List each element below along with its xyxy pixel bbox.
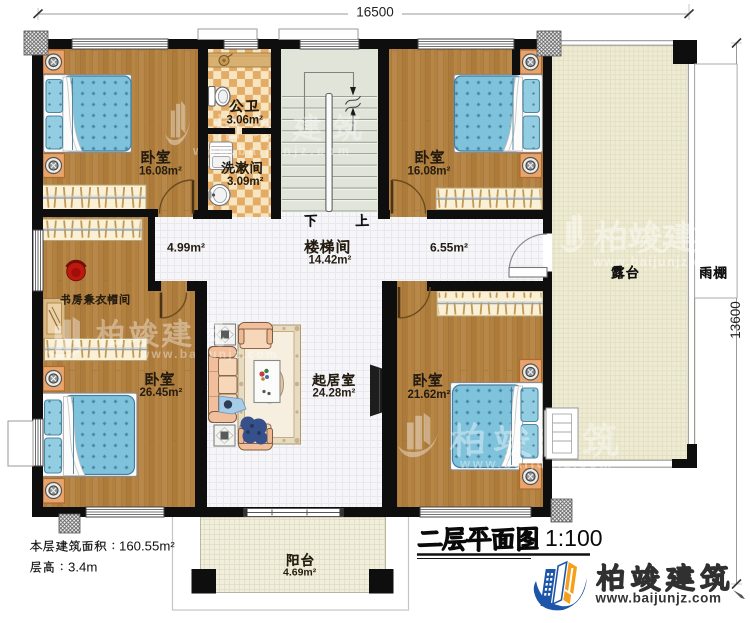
svg-text:4.99m²: 4.99m²	[167, 241, 205, 255]
svg-text:3.4m: 3.4m	[68, 560, 97, 575]
svg-text:www.baijunjz.com: www.baijunjz.com	[139, 347, 279, 361]
svg-text:16500: 16500	[356, 5, 394, 20]
svg-text:14.42m²: 14.42m²	[309, 255, 352, 267]
svg-text:26.45m²: 26.45m²	[140, 387, 183, 399]
svg-text:3.06m²: 3.06m²	[227, 115, 264, 127]
svg-text:160.55m²: 160.55m²	[119, 539, 175, 554]
svg-text:3.09m²: 3.09m²	[227, 176, 264, 188]
svg-text:1:100: 1:100	[545, 525, 603, 551]
svg-text:www.baijunjz.com: www.baijunjz.com	[595, 591, 722, 606]
svg-text:24.28m²: 24.28m²	[313, 388, 356, 400]
svg-text:6.55m²: 6.55m²	[430, 241, 468, 255]
svg-text:16.08m²: 16.08m²	[139, 166, 182, 178]
svg-text:21.62m²: 21.62m²	[408, 389, 451, 401]
svg-text:4.69m²: 4.69m²	[283, 567, 317, 579]
svg-text:16.08m²: 16.08m²	[408, 166, 451, 178]
svg-text:www.baijunjz.com: www.baijunjz.com	[459, 456, 614, 471]
svg-text:13600: 13600	[728, 301, 743, 339]
